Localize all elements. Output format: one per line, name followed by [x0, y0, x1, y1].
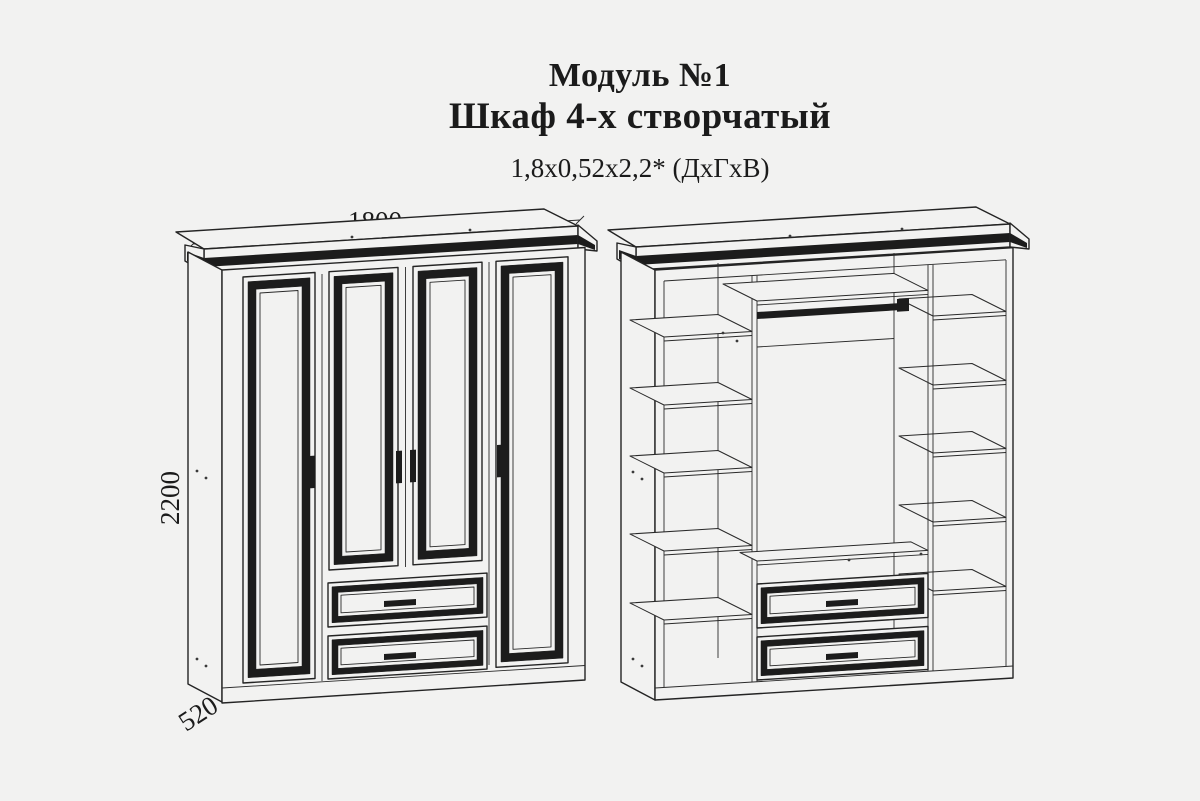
door-handle [497, 445, 503, 478]
front-view-drawing: 1800 [155, 206, 597, 737]
door-handle [410, 450, 416, 483]
wardrobe-door-4 [496, 257, 568, 668]
wardrobe-door-3 [410, 262, 482, 565]
wardrobe-door-2 [329, 267, 402, 570]
height-dimension-label: 2200 [155, 471, 185, 525]
door-handle [309, 456, 315, 489]
wardrobe-door-1 [243, 273, 315, 684]
door-handle [396, 451, 402, 484]
interior-view-drawing [608, 207, 1029, 700]
front-drawer-2 [328, 626, 487, 679]
technical-drawing: 1800 [0, 0, 1200, 801]
interior-carcass [621, 248, 1013, 700]
catalog-page: Модуль №1 Шкаф 4-х створчатый 1,8х0,52х2… [0, 0, 1200, 801]
front-drawer-1 [328, 573, 487, 627]
